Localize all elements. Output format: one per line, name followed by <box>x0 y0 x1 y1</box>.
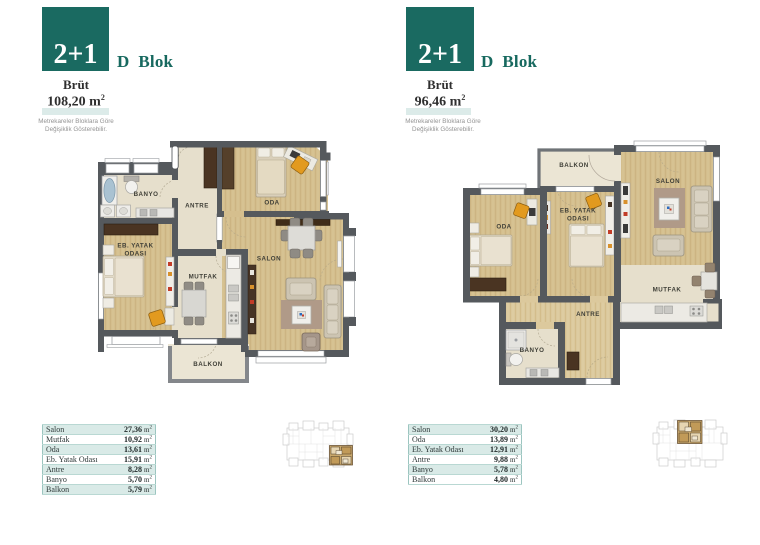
svg-text:MUTFAK: MUTFAK <box>189 274 218 281</box>
svg-text:ODASI: ODASI <box>124 251 146 258</box>
svg-text:BALKON: BALKON <box>193 361 222 368</box>
svg-text:BALKON: BALKON <box>559 162 588 169</box>
svg-text:SALON: SALON <box>656 178 680 185</box>
svg-text:MUTFAK: MUTFAK <box>653 287 682 294</box>
svg-text:EB. YATAK: EB. YATAK <box>117 243 153 250</box>
svg-text:ANTRE: ANTRE <box>185 203 209 210</box>
svg-text:BANYO: BANYO <box>520 347 545 354</box>
svg-text:ODASI: ODASI <box>567 216 589 223</box>
svg-text:ODA: ODA <box>264 200 279 207</box>
svg-text:BANYO: BANYO <box>134 191 159 198</box>
svg-text:EB. YATAK: EB. YATAK <box>560 208 596 215</box>
svg-text:ODA: ODA <box>496 224 511 231</box>
svg-text:ANTRE: ANTRE <box>576 311 600 318</box>
svg-text:SALON: SALON <box>257 256 281 263</box>
